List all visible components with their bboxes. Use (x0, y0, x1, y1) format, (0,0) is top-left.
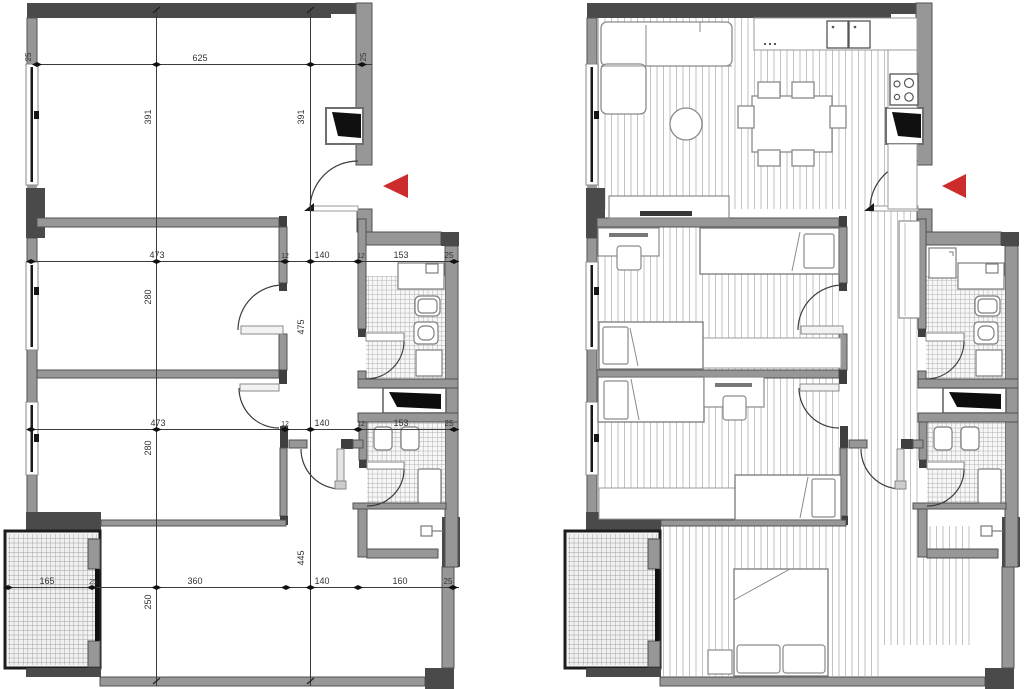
svg-text:250: 250 (143, 594, 153, 609)
svg-text:25: 25 (24, 52, 33, 61)
svg-text:160: 160 (392, 576, 407, 586)
svg-text:625: 625 (192, 53, 207, 63)
svg-text:473: 473 (149, 250, 164, 260)
svg-text:12: 12 (357, 253, 365, 260)
svg-text:280: 280 (143, 289, 153, 304)
svg-text:391: 391 (296, 109, 306, 124)
svg-text:25: 25 (445, 419, 454, 428)
svg-text:25: 25 (89, 579, 97, 586)
svg-text:391: 391 (143, 109, 153, 124)
svg-text:153: 153 (393, 250, 408, 260)
svg-text:25: 25 (359, 52, 368, 61)
svg-text:140: 140 (314, 250, 329, 260)
svg-text:280: 280 (143, 440, 153, 455)
svg-text:25: 25 (444, 577, 453, 586)
svg-text:475: 475 (296, 319, 306, 334)
svg-text:12: 12 (281, 253, 289, 260)
svg-text:165: 165 (39, 576, 54, 586)
svg-text:140: 140 (314, 576, 329, 586)
svg-text:12: 12 (281, 421, 289, 428)
svg-text:473: 473 (150, 418, 165, 428)
svg-text:12: 12 (357, 421, 365, 428)
svg-text:140: 140 (314, 418, 329, 428)
svg-text:445: 445 (296, 550, 306, 565)
svg-text:360: 360 (187, 576, 202, 586)
svg-text:25: 25 (445, 251, 454, 260)
svg-text:153: 153 (393, 418, 408, 428)
